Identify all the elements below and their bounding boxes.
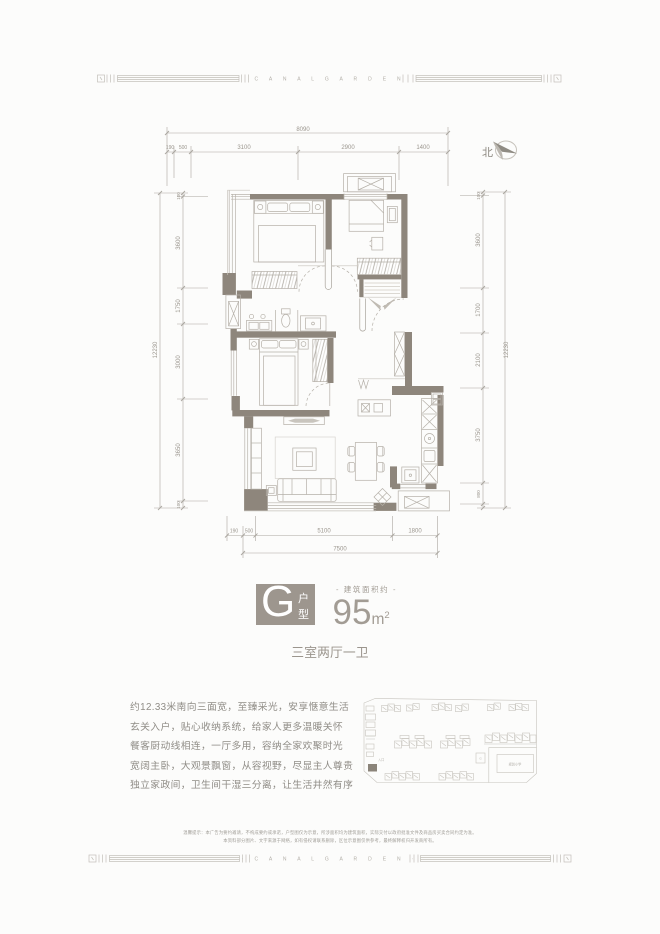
svg-text:3100: 3100 bbox=[237, 145, 251, 151]
svg-text:100: 100 bbox=[176, 501, 181, 509]
svg-text:500: 500 bbox=[179, 145, 188, 151]
svg-text:C A N A L G A R D E N: C A N A L G A R D E N bbox=[255, 77, 406, 83]
svg-text:1800: 1800 bbox=[408, 529, 422, 535]
svg-text:100: 100 bbox=[176, 192, 181, 200]
svg-text:1700: 1700 bbox=[476, 303, 482, 317]
svg-text:7500: 7500 bbox=[333, 547, 347, 553]
svg-text:3650: 3650 bbox=[176, 443, 182, 457]
svg-text:12230: 12230 bbox=[153, 341, 159, 358]
svg-text:1400: 1400 bbox=[416, 145, 430, 151]
svg-text:3600: 3600 bbox=[176, 236, 182, 250]
svg-text:· C A N A L G A R D E N ·: · C A N A L G A R D E N · bbox=[242, 857, 418, 863]
svg-text:500: 500 bbox=[245, 529, 254, 535]
svg-text:100: 100 bbox=[476, 192, 481, 200]
svg-text:2900: 2900 bbox=[341, 145, 355, 151]
svg-text:190: 190 bbox=[166, 145, 175, 151]
svg-text:规划小学: 规划小学 bbox=[509, 762, 522, 767]
svg-text:5100: 5100 bbox=[317, 529, 331, 535]
svg-text:8090: 8090 bbox=[296, 127, 310, 133]
svg-text:G: G bbox=[479, 757, 482, 761]
svg-text:800: 800 bbox=[476, 490, 481, 498]
svg-text:3000: 3000 bbox=[176, 355, 182, 369]
svg-text:190: 190 bbox=[230, 529, 239, 535]
svg-text:12230: 12230 bbox=[504, 341, 510, 358]
svg-text:3600: 3600 bbox=[476, 233, 482, 247]
svg-text:1750: 1750 bbox=[176, 299, 182, 313]
svg-text:2100: 2100 bbox=[476, 353, 482, 367]
svg-text:北: 北 bbox=[482, 146, 493, 159]
svg-text:3750: 3750 bbox=[476, 428, 482, 442]
